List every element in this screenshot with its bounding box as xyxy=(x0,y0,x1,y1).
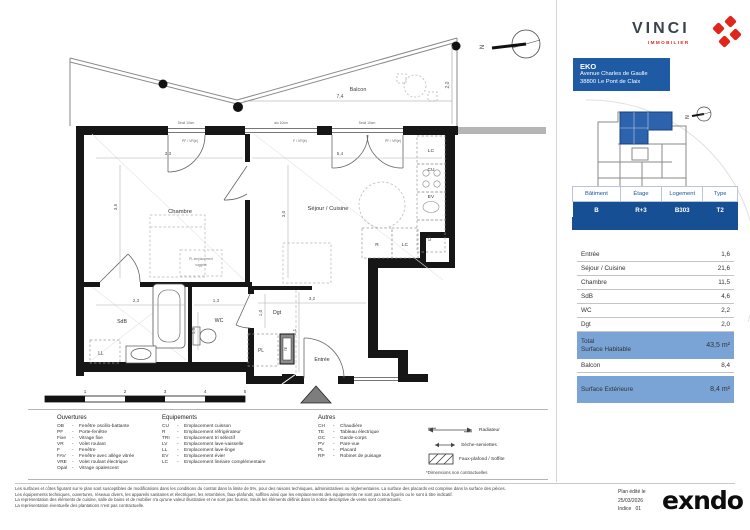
legend-item: Opal-Vitrage opalescent xyxy=(57,466,134,472)
svg-text:5: 5 xyxy=(244,389,247,394)
svg-text:Entrée: Entrée xyxy=(314,357,329,363)
scale-bar: 1 2 3 4 5 xyxy=(45,389,247,402)
svg-text:1: 1 xyxy=(84,389,87,394)
surface-row: Entrée 1,6 xyxy=(577,248,734,262)
svg-text:2,1: 2,1 xyxy=(292,328,297,335)
legend-note: *Dimensions non contractuelles xyxy=(426,470,488,475)
compass-north-label: N xyxy=(480,45,486,49)
surface-total-row: Total Surface Habitable 43,5 m² xyxy=(577,332,734,359)
unit-value-batiment: B xyxy=(573,202,621,219)
legend-equipements: Equipements CU-Emplacement cuissonR-Empl… xyxy=(162,415,266,466)
svg-text:LC: LC xyxy=(402,242,409,248)
surface-balcon-label: Balcon xyxy=(577,362,688,369)
unit-header-batiment: Bâtiment xyxy=(573,187,621,202)
legend-autres-title: Autres xyxy=(318,415,381,421)
plan-drawing-area: 7,4 2,0 Balcon N xyxy=(0,0,557,482)
svg-text:LC: LC xyxy=(428,148,435,154)
plan-index-label: Indice xyxy=(618,506,631,512)
site-compass-icon: N xyxy=(685,107,711,121)
surface-table: Entrée 1,6 Séjour / Cuisine 21,6 Chambre… xyxy=(577,248,734,403)
svg-text:5,4: 5,4 xyxy=(337,151,344,156)
unit-value-type: T2 xyxy=(703,202,738,219)
svg-text:3: 3 xyxy=(164,389,167,394)
legend-ouvertures: Ouvertures OB-Fenêtre oscillo-battantePF… xyxy=(57,415,134,472)
surface-balcon-row: Balcon 8,4 xyxy=(577,359,734,373)
legend-item: RP-Robinet de puisage xyxy=(318,454,381,460)
unit-table-accent-bar xyxy=(572,217,738,230)
svg-text:PF / VR(é): PF / VR(é) xyxy=(182,139,198,143)
svg-text:LV: LV xyxy=(427,234,433,240)
plan-edited-date: 25/03/2026 xyxy=(618,497,646,506)
svg-text:Seuil 10cm: Seuil 10cm xyxy=(178,121,195,125)
unit-header-logement: Logement xyxy=(662,187,703,202)
unit-value-logement: B303 xyxy=(662,202,703,219)
surface-row: SdB 4,6 xyxy=(577,290,734,304)
surface-row: WC 2,2 xyxy=(577,304,734,318)
vinci-wordmark: VINCI xyxy=(632,20,690,38)
project-name: EKO xyxy=(580,62,666,71)
svg-text:EV: EV xyxy=(428,194,435,200)
surface-balcon-value: 8,4 xyxy=(688,362,734,369)
legend-autres: Autres CH-ChaudièreTE-Tableau électrique… xyxy=(318,415,381,460)
dimension-labels: 3,3 3,5 5,4 3,0 2,3 1,3 1,5 3,2 1,0 2,1 xyxy=(113,151,344,335)
pl-suggested-label-1: PL emplacement xyxy=(189,257,213,261)
project-info-box: EKO Avenue Charles de Gaulle 38800 Le Po… xyxy=(573,58,670,91)
svg-text:1,0: 1,0 xyxy=(258,309,263,316)
svg-text:Chambre: Chambre xyxy=(168,209,192,215)
plan-index-value: 01 xyxy=(636,506,642,512)
vinci-symbol-icon xyxy=(708,14,744,50)
vinci-logo: VINCI IMMOBILIER xyxy=(632,14,744,52)
svg-text:3,2: 3,2 xyxy=(309,296,316,301)
svg-text:PF / VR(é): PF / VR(é) xyxy=(385,139,401,143)
unit-value-etage: R+3 xyxy=(620,202,661,219)
vinci-subtitle: IMMOBILIER xyxy=(648,40,690,45)
closet-label: PL xyxy=(258,348,264,354)
unit-header-type: Type xyxy=(703,187,738,202)
svg-text:CU: CU xyxy=(428,167,435,173)
surface-exterior-row: Surface Extérieure 8,4 m² xyxy=(577,376,734,403)
compass-icon: N xyxy=(480,30,540,58)
svg-text:Séjour / Cuisine: Séjour / Cuisine xyxy=(308,206,349,212)
project-address-2: 38800 Le Pont de Claix xyxy=(580,79,666,87)
legend: Ouvertures OB-Fenêtre oscillo-battantePF… xyxy=(28,409,548,480)
plan-index: Indice 01 xyxy=(618,505,646,514)
surface-rows: Entrée 1,6 Séjour / Cuisine 21,6 Chambre… xyxy=(577,248,734,332)
surface-total-label-2: Surface Habitable xyxy=(581,346,631,353)
plan-edition-info: Plan édité le 25/03/2026 Indice 01 xyxy=(618,488,646,514)
floor-plan-svg: 7,4 2,0 Balcon N xyxy=(0,0,556,408)
washbasin xyxy=(126,346,156,363)
radiator-icon xyxy=(426,426,474,434)
construction-lines xyxy=(92,134,443,360)
svg-text:Seuil 10cm: Seuil 10cm xyxy=(359,121,376,125)
svg-text:1,5: 1,5 xyxy=(191,327,196,334)
legend-equipements-list: CU-Emplacement cuissonR-Emplacement réfr… xyxy=(162,424,266,466)
unit-header-etage: Étage xyxy=(620,187,661,202)
legend-item: LC-Emplacement linéaire complémentaire xyxy=(162,460,266,466)
floor-plan-sheet: 7,4 2,0 Balcon N xyxy=(0,0,750,530)
surface-row: Dgt 2,0 xyxy=(577,318,734,332)
surface-row: Séjour / Cuisine 21,6 xyxy=(577,262,734,276)
legend-autres-list: CH-ChaudièreTE-Tableau électriqueGC-Gard… xyxy=(318,424,381,460)
balcony-posts xyxy=(159,42,461,113)
surface-exterior-value: 8,4 m² xyxy=(688,386,734,393)
washer-label: LL xyxy=(98,351,104,357)
balcony-railing xyxy=(70,38,457,126)
washer-slot xyxy=(90,340,120,363)
svg-text:3,5: 3,5 xyxy=(113,203,118,210)
legal-text: Les surfaces et côtes figurant sur le pl… xyxy=(15,486,615,509)
dim-balcon-depth: 2,0 xyxy=(445,81,451,88)
legend-symbol-faux-plafond: Faux-plafond / Soffite xyxy=(428,453,505,465)
svg-text:3,0: 3,0 xyxy=(281,210,286,217)
legend-ouvertures-list: OB-Fenêtre oscillo-battantePF-Porte-fenê… xyxy=(57,424,134,472)
legal-line-4: La représentation éventuelle des plantat… xyxy=(15,503,615,509)
pl-suggested-label-2: suggéré xyxy=(195,263,207,267)
svg-text:2,3: 2,3 xyxy=(133,298,140,303)
balcony-furniture xyxy=(397,74,437,101)
north-arrow-icon xyxy=(301,386,331,403)
plan-edited-label: Plan édité le xyxy=(618,488,646,497)
surface-row: Chambre 11,5 xyxy=(577,276,734,290)
legend-symbol-seche: Sèche-serviettes xyxy=(434,441,497,449)
svg-text:F / VR(é): F / VR(é) xyxy=(293,139,307,143)
room-label-balcon: Balcon xyxy=(350,87,367,93)
svg-text:3,3: 3,3 xyxy=(165,151,172,156)
unit-identity-table: Bâtiment Étage Logement Type B R+3 B303 … xyxy=(572,186,738,218)
surface-total-value: 43,5 m² xyxy=(688,342,734,349)
svg-text:WC: WC xyxy=(215,318,224,324)
legend-equipements-title: Equipements xyxy=(162,415,266,421)
soffit-icon xyxy=(428,453,454,465)
exndo-logo: exndo xyxy=(662,486,743,515)
cooktop-sink xyxy=(423,170,440,213)
svg-text:alu 10cm: alu 10cm xyxy=(274,121,288,125)
towel-dryer-icon xyxy=(434,441,456,449)
svg-text:Dgt: Dgt xyxy=(273,310,282,316)
legend-symbol-radiateur: Radiateur xyxy=(426,426,500,434)
symbol-label: Sèche-serviettes xyxy=(461,443,497,448)
svg-text:4: 4 xyxy=(204,389,207,394)
site-compass-north: N xyxy=(685,115,691,119)
surface-total-label-1: Total xyxy=(581,338,594,345)
svg-text:R: R xyxy=(375,242,379,248)
footer-divider xyxy=(15,483,735,484)
bathtub xyxy=(153,284,185,348)
exterior-walls xyxy=(76,126,546,384)
electrical-panel-label: TE xyxy=(284,346,288,351)
toilet xyxy=(193,327,216,345)
svg-text:1,3: 1,3 xyxy=(213,298,220,303)
surface-exterior-label: Surface Extérieure xyxy=(577,386,688,394)
project-address-1: Avenue Charles de Gaulle xyxy=(580,71,666,79)
symbol-label: Radiateur xyxy=(479,428,500,433)
electrical-panel: TE xyxy=(280,334,294,364)
balcony-dim-lines xyxy=(244,46,452,124)
svg-text:SdB: SdB xyxy=(117,319,127,325)
svg-text:2: 2 xyxy=(124,389,127,394)
symbol-label: Faux-plafond / Soffite xyxy=(459,457,505,462)
dim-balcon-width: 7,4 xyxy=(337,94,344,100)
legend-ouvertures-title: Ouvertures xyxy=(57,415,134,421)
